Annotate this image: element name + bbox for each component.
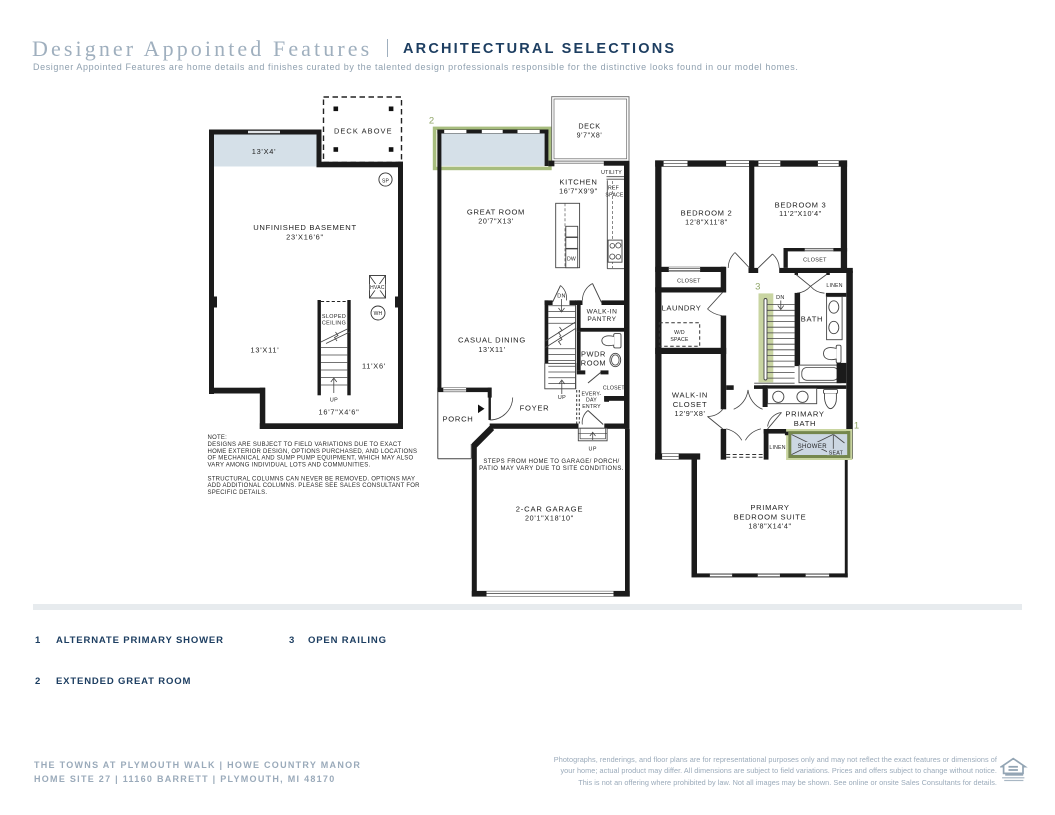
svg-text:PRIMARY: PRIMARY	[750, 503, 789, 512]
svg-text:UP: UP	[558, 395, 566, 401]
svg-text:DECK ABOVE: DECK ABOVE	[334, 126, 393, 135]
svg-text:LINEN: LINEN	[769, 445, 785, 451]
svg-text:STRUCTURAL COLUMNS CAN NEVER B: STRUCTURAL COLUMNS CAN NEVER BE REMOVED.…	[208, 476, 416, 482]
svg-text:18'8"X14'4": 18'8"X14'4"	[748, 522, 791, 531]
svg-text:HOME EXTERIOR DESIGN, OPTIONS: HOME EXTERIOR DESIGN, OPTIONS PURCHASED,…	[208, 449, 418, 455]
svg-text:WH: WH	[374, 311, 383, 317]
svg-text:13'X11': 13'X11'	[478, 345, 505, 354]
svg-text:CASUAL DINING: CASUAL DINING	[458, 336, 526, 345]
svg-text:KITCHEN: KITCHEN	[559, 178, 597, 187]
svg-text:2-CAR GARAGE: 2-CAR GARAGE	[516, 505, 584, 514]
svg-text:20'7"X13': 20'7"X13'	[478, 217, 514, 226]
svg-text:11'X6': 11'X6'	[362, 362, 386, 371]
svg-text:CLOSET: CLOSET	[673, 400, 708, 409]
svg-text:12'8"X11'8": 12'8"X11'8"	[685, 218, 728, 227]
svg-text:LAUNDRY: LAUNDRY	[662, 303, 702, 312]
svg-text:DN: DN	[557, 293, 566, 299]
svg-text:CLOSET: CLOSET	[603, 386, 626, 392]
svg-text:PANTRY: PANTRY	[587, 316, 616, 323]
svg-text:13'X11': 13'X11'	[251, 346, 280, 355]
svg-text:NOTE:: NOTE:	[208, 435, 228, 441]
svg-text:20'1"X18'10": 20'1"X18'10"	[525, 514, 574, 523]
svg-text:EVERY-: EVERY-	[582, 391, 602, 397]
svg-text:SPECIFIC DETAILS.: SPECIFIC DETAILS.	[208, 490, 268, 496]
svg-text:3: 3	[755, 281, 760, 292]
svg-text:PATIO MAY VARY DUE TO SITE CON: PATIO MAY VARY DUE TO SITE CONDITIONS.	[479, 466, 624, 472]
svg-text:FOYER: FOYER	[520, 403, 550, 412]
svg-text:PWDR: PWDR	[581, 350, 606, 359]
svg-text:CLOSET: CLOSET	[803, 258, 827, 264]
svg-text:DW: DW	[567, 256, 576, 262]
svg-text:DECK: DECK	[578, 122, 600, 131]
svg-text:23'X16'6": 23'X16'6"	[286, 233, 324, 242]
svg-text:DN: DN	[776, 295, 785, 301]
svg-text:2: 2	[429, 115, 434, 126]
svg-text:UP: UP	[330, 398, 338, 404]
svg-text:11'2"X10'4": 11'2"X10'4"	[779, 209, 822, 218]
svg-text:16'7"X4'6": 16'7"X4'6"	[318, 408, 359, 417]
svg-text:SHOWER: SHOWER	[798, 444, 828, 450]
svg-text:ROOM: ROOM	[581, 359, 606, 368]
svg-text:VARY AMONG INDIVIDUAL LOTS AND: VARY AMONG INDIVIDUAL LOTS AND COMMUNITI…	[208, 462, 371, 468]
svg-text:BATH: BATH	[801, 315, 824, 324]
svg-text:UP: UP	[589, 447, 597, 453]
svg-text:ENTRY: ENTRY	[582, 404, 601, 410]
svg-text:UTILITY: UTILITY	[601, 170, 622, 176]
svg-text:1: 1	[854, 420, 859, 431]
svg-text:SPACE: SPACE	[670, 337, 689, 343]
svg-text:BATH: BATH	[794, 419, 817, 428]
svg-text:CLOSET: CLOSET	[677, 278, 701, 284]
svg-text:SP: SP	[382, 179, 390, 185]
svg-text:DESIGNS ARE SUBJECT TO FIELD V: DESIGNS ARE SUBJECT TO FIELD VARIATIONS …	[208, 442, 402, 448]
svg-text:BEDROOM SUITE: BEDROOM SUITE	[734, 512, 807, 521]
svg-text:OF MECHANICAL AND SUMP PUMP EQ: OF MECHANICAL AND SUMP PUMP EQUIPMENT, W…	[208, 456, 414, 462]
svg-text:13'X4': 13'X4'	[252, 147, 277, 156]
svg-text:W/D: W/D	[674, 330, 685, 336]
svg-text:BEDROOM 2: BEDROOM 2	[681, 209, 733, 218]
svg-text:SLOPED: SLOPED	[322, 314, 346, 320]
svg-text:DAY: DAY	[586, 398, 597, 404]
svg-text:WALK-IN: WALK-IN	[672, 391, 708, 400]
svg-text:LINEN: LINEN	[826, 283, 842, 289]
svg-text:STEPS FROM HOME TO GARAGE/ POR: STEPS FROM HOME TO GARAGE/ PORCH/	[483, 459, 619, 465]
svg-text:12'9"X8': 12'9"X8'	[675, 409, 706, 418]
svg-text:REF: REF	[608, 186, 619, 192]
svg-text:PRIMARY: PRIMARY	[785, 410, 824, 419]
svg-text:ADD ADDITIONAL COLUMNS. PLEASE: ADD ADDITIONAL COLUMNS. PLEASE SEE SALES…	[208, 483, 421, 489]
svg-text:SEAT: SEAT	[829, 450, 844, 456]
svg-text:PORCH: PORCH	[443, 414, 474, 423]
svg-text:BEDROOM 3: BEDROOM 3	[775, 201, 827, 210]
svg-text:HVAC: HVAC	[370, 285, 385, 291]
svg-text:9'7"X8': 9'7"X8'	[577, 133, 603, 140]
svg-text:GREAT ROOM: GREAT ROOM	[467, 208, 525, 217]
svg-text:16'7"X9'9": 16'7"X9'9"	[559, 187, 598, 196]
svg-text:WALK-IN: WALK-IN	[587, 309, 618, 316]
svg-text:UNFINISHED BASEMENT: UNFINISHED BASEMENT	[253, 223, 357, 232]
svg-text:CEILING: CEILING	[322, 320, 346, 326]
svg-text:SPACE: SPACE	[605, 192, 624, 198]
